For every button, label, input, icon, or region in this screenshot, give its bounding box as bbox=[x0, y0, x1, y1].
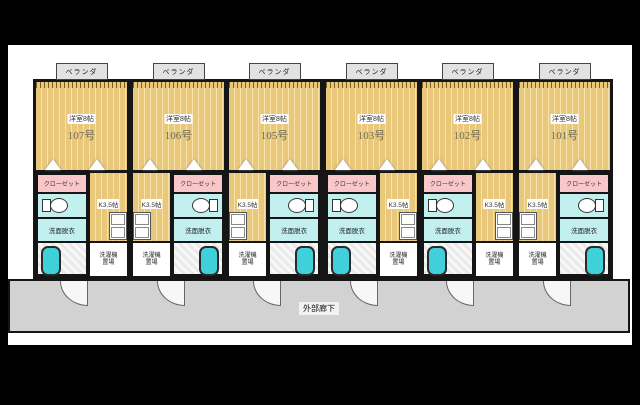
kitchen-counter-icon bbox=[495, 212, 513, 240]
main-room: 洋室8帖 105号 bbox=[229, 82, 320, 173]
balcony-text: ベランダ bbox=[259, 67, 291, 77]
washroom: 洗面脱衣 bbox=[558, 219, 610, 243]
plumbing-column: クローゼット 洗面脱衣 bbox=[268, 173, 320, 276]
washroom-label: 洗面脱衣 bbox=[571, 225, 597, 235]
balcony-label: ベランダ bbox=[539, 63, 591, 80]
balcony-text: ベランダ bbox=[66, 67, 98, 77]
washroom: 洗面脱衣 bbox=[422, 219, 474, 243]
balcony-label: ベランダ bbox=[442, 63, 494, 80]
window-band bbox=[133, 82, 224, 88]
door-symbol bbox=[142, 159, 158, 170]
balcony-label: ベランダ bbox=[249, 63, 301, 80]
bathtub-icon bbox=[199, 246, 219, 276]
balcony-text: ベランダ bbox=[452, 67, 484, 77]
laundry-space: 洗濯機置場 bbox=[229, 241, 266, 276]
closet: クローゼット bbox=[558, 173, 610, 194]
entrance-door-arc bbox=[157, 281, 185, 306]
bathroom bbox=[422, 243, 474, 276]
unit-105: ベランダ 洋室8帖 105号 クローゼット 洗面脱衣 K3.5帖 洗濯機置場 bbox=[226, 79, 323, 279]
kitchen-column: K3.5帖 洗濯機置場 bbox=[378, 173, 417, 276]
balcony-label: ベランダ bbox=[153, 63, 205, 80]
unit-number: 107号 bbox=[68, 127, 96, 143]
kitchen-column: K3.5帖 洗濯機置場 bbox=[474, 173, 513, 276]
kitchen-label: K3.5帖 bbox=[527, 199, 549, 209]
closet: クローゼット bbox=[172, 173, 224, 194]
door-symbol bbox=[335, 159, 351, 170]
main-room: 洋室8帖 107号 bbox=[36, 82, 127, 173]
bathtub-icon bbox=[331, 246, 351, 276]
toilet-room bbox=[268, 194, 320, 219]
unit-103: ベランダ 洋室8帖 103号 クローゼット 洗面脱衣 K3.5帖 洗濯機置場 bbox=[323, 79, 420, 279]
door-symbol bbox=[238, 159, 254, 170]
plumbing-column: クローゼット 洗面脱衣 bbox=[558, 173, 610, 276]
plumbing-column: クローゼット 洗面脱衣 bbox=[36, 173, 88, 276]
floor-plan-page: ベランダ 洋室8帖 107号 クローゼット 洗面脱衣 K3.5帖 洗濯機置場 ベ… bbox=[8, 45, 632, 345]
corridor-label: 外部廊下 bbox=[299, 302, 339, 315]
window-band bbox=[422, 82, 513, 88]
plumbing-column: クローゼット 洗面脱衣 bbox=[172, 173, 224, 276]
door-symbol bbox=[475, 159, 491, 170]
washroom: 洗面脱衣 bbox=[172, 219, 224, 243]
unit-106: ベランダ 洋室8帖 106号 クローゼット 洗面脱衣 K3.5帖 洗濯機置場 bbox=[130, 79, 227, 279]
bathroom bbox=[36, 243, 88, 276]
door-symbol bbox=[186, 159, 202, 170]
kitchen-counter-icon bbox=[229, 212, 247, 240]
unit-number: 103号 bbox=[358, 127, 386, 143]
kitchen-counter-icon bbox=[399, 212, 417, 240]
toilet-icon bbox=[42, 198, 68, 211]
toilet-icon bbox=[288, 198, 314, 211]
room-size-label: 洋室8帖 bbox=[260, 114, 289, 124]
unit-number: 102号 bbox=[454, 127, 482, 143]
washroom-label: 洗面脱衣 bbox=[339, 225, 365, 235]
unit-102: ベランダ 洋室8帖 102号 クローゼット 洗面脱衣 K3.5帖 洗濯機置場 bbox=[419, 79, 516, 279]
unit-lower-zone: クローゼット 洗面脱衣 K3.5帖 洗濯機置場 bbox=[133, 173, 224, 276]
unit-101: ベランダ 洋室8帖 101号 クローゼット 洗面脱衣 K3.5帖 洗濯機置場 bbox=[516, 79, 613, 279]
laundry-space: 洗濯機置場 bbox=[133, 241, 170, 276]
balcony-text: ベランダ bbox=[163, 67, 195, 77]
closet-label: クローゼット bbox=[276, 179, 312, 188]
window-band bbox=[326, 82, 417, 88]
kitchen-counter-icon bbox=[519, 212, 537, 240]
entrance-door-arc bbox=[60, 281, 88, 306]
bathroom bbox=[558, 243, 610, 276]
kitchen-label: K3.5帖 bbox=[387, 199, 409, 209]
closet: クローゼット bbox=[36, 173, 88, 194]
toilet-room bbox=[36, 194, 88, 219]
washroom: 洗面脱衣 bbox=[326, 219, 378, 243]
window-band bbox=[229, 82, 320, 88]
closet-label: クローゼット bbox=[566, 179, 602, 188]
unit-number: 105号 bbox=[261, 127, 289, 143]
door-symbol bbox=[45, 159, 61, 170]
bathtub-icon bbox=[585, 246, 605, 276]
toilet-room bbox=[422, 194, 474, 219]
main-room: 洋室8帖 102号 bbox=[422, 82, 513, 173]
door-symbol bbox=[282, 159, 298, 170]
bathtub-icon bbox=[427, 246, 447, 276]
main-room: 洋室8帖 106号 bbox=[133, 82, 224, 173]
door-symbol bbox=[528, 159, 544, 170]
plumbing-column: クローゼット 洗面脱衣 bbox=[422, 173, 474, 276]
unit-107: ベランダ 洋室8帖 107号 クローゼット 洗面脱衣 K3.5帖 洗濯機置場 bbox=[33, 79, 130, 279]
closet-label: クローゼット bbox=[430, 179, 466, 188]
kitchen-counter-icon bbox=[133, 212, 151, 240]
washroom: 洗面脱衣 bbox=[268, 219, 320, 243]
kitchen-label: K3.5帖 bbox=[237, 199, 259, 209]
unit-lower-zone: クローゼット 洗面脱衣 K3.5帖 洗濯機置場 bbox=[229, 173, 320, 276]
closet-label: クローゼット bbox=[180, 179, 216, 188]
kitchen-label: K3.5帖 bbox=[483, 199, 505, 209]
exterior-corridor: 外部廊下 bbox=[8, 279, 630, 333]
room-size-label: 洋室8帖 bbox=[453, 114, 482, 124]
unit-number: 101号 bbox=[551, 127, 579, 143]
closet-label: クローゼット bbox=[44, 179, 80, 188]
toilet-room bbox=[172, 194, 224, 219]
unit-number: 106号 bbox=[165, 127, 193, 143]
balcony-text: ベランダ bbox=[549, 67, 581, 77]
laundry-space: 洗濯機置場 bbox=[90, 241, 127, 276]
toilet-icon bbox=[428, 198, 454, 211]
closet: クローゼット bbox=[268, 173, 320, 194]
bathtub-icon bbox=[295, 246, 315, 276]
kitchen-column: K3.5帖 洗濯機置場 bbox=[133, 173, 172, 276]
washroom: 洗面脱衣 bbox=[36, 219, 88, 243]
unit-lower-zone: クローゼット 洗面脱衣 K3.5帖 洗濯機置場 bbox=[326, 173, 417, 276]
kitchen-label: K3.5帖 bbox=[141, 199, 163, 209]
laundry-space: 洗濯機置場 bbox=[380, 241, 417, 276]
balcony-label: ベランダ bbox=[56, 63, 108, 80]
laundry-space: 洗濯機置場 bbox=[519, 241, 556, 276]
toilet-icon bbox=[332, 198, 358, 211]
door-symbol bbox=[572, 159, 588, 170]
door-symbol bbox=[431, 159, 447, 170]
toilet-icon bbox=[192, 198, 218, 211]
plumbing-column: クローゼット 洗面脱衣 bbox=[326, 173, 378, 276]
room-size-label: 洋室8帖 bbox=[67, 114, 96, 124]
door-symbol bbox=[379, 159, 395, 170]
closet: クローゼット bbox=[422, 173, 474, 194]
laundry-space: 洗濯機置場 bbox=[476, 241, 513, 276]
closet: クローゼット bbox=[326, 173, 378, 194]
entrance-door-arc bbox=[446, 281, 474, 306]
washroom-label: 洗面脱衣 bbox=[49, 225, 75, 235]
entrance-door-arc bbox=[350, 281, 378, 306]
room-size-label: 洋室8帖 bbox=[357, 114, 386, 124]
bathroom bbox=[172, 243, 224, 276]
unit-lower-zone: クローゼット 洗面脱衣 K3.5帖 洗濯機置場 bbox=[422, 173, 513, 276]
bathtub-icon bbox=[41, 246, 61, 276]
bathroom bbox=[268, 243, 320, 276]
entrance-door-arc bbox=[543, 281, 571, 306]
toilet-icon bbox=[578, 198, 604, 211]
door-symbol bbox=[89, 159, 105, 170]
toilet-room bbox=[326, 194, 378, 219]
bathroom bbox=[326, 243, 378, 276]
entrance-door-arc bbox=[253, 281, 281, 306]
main-room: 洋室8帖 103号 bbox=[326, 82, 417, 173]
window-band bbox=[519, 82, 610, 88]
window-band bbox=[36, 82, 127, 88]
kitchen-column: K3.5帖 洗濯機置場 bbox=[88, 173, 127, 276]
balcony-label: ベランダ bbox=[346, 63, 398, 80]
closet-label: クローゼット bbox=[334, 179, 370, 188]
main-room: 洋室8帖 101号 bbox=[519, 82, 610, 173]
washroom-label: 洗面脱衣 bbox=[281, 225, 307, 235]
kitchen-column: K3.5帖 洗濯機置場 bbox=[519, 173, 558, 276]
kitchen-counter-icon bbox=[109, 212, 127, 240]
kitchen-label: K3.5帖 bbox=[97, 199, 119, 209]
room-size-label: 洋室8帖 bbox=[550, 114, 579, 124]
room-size-label: 洋室8帖 bbox=[164, 114, 193, 124]
balcony-text: ベランダ bbox=[356, 67, 388, 77]
unit-lower-zone: クローゼット 洗面脱衣 K3.5帖 洗濯機置場 bbox=[36, 173, 127, 276]
unit-lower-zone: クローゼット 洗面脱衣 K3.5帖 洗濯機置場 bbox=[519, 173, 610, 276]
kitchen-column: K3.5帖 洗濯機置場 bbox=[229, 173, 268, 276]
toilet-room bbox=[558, 194, 610, 219]
washroom-label: 洗面脱衣 bbox=[185, 225, 211, 235]
washroom-label: 洗面脱衣 bbox=[435, 225, 461, 235]
